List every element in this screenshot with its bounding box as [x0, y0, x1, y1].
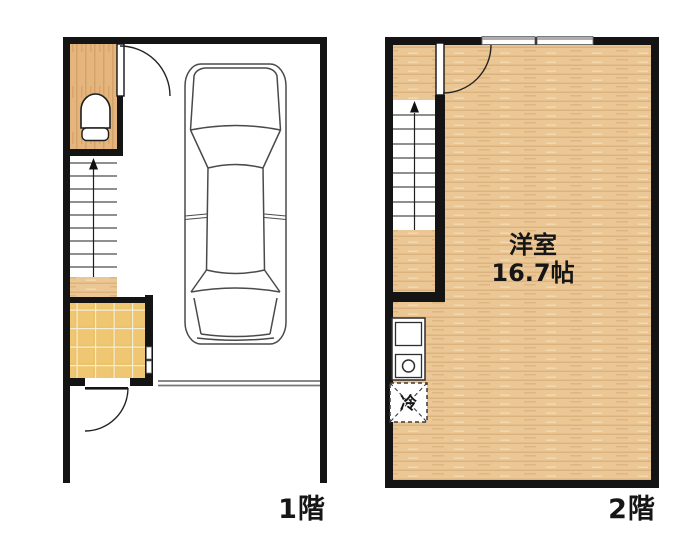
floorplan-first-floor	[58, 32, 332, 484]
garage-shutter-line	[158, 381, 320, 386]
door-swing-arc	[120, 46, 170, 96]
toilet-icon	[81, 94, 110, 141]
second-floor-label: 2階	[590, 487, 674, 526]
entrance-step-edge	[63, 297, 145, 303]
floorplan-second-floor: 冷 洋室 16.7帖	[380, 30, 665, 495]
door-leaf	[117, 44, 124, 96]
refrigerator-space: 冷	[390, 383, 427, 422]
door-swing-arc	[85, 388, 128, 431]
room-name-label: 洋室	[509, 231, 557, 259]
first-floor-label: 1階	[260, 487, 344, 526]
interior-door	[117, 44, 170, 96]
fridge-label: 冷	[400, 393, 417, 414]
entrance-side-opening-top	[147, 347, 152, 359]
car-icon	[185, 64, 286, 344]
wall-left	[63, 37, 70, 483]
stove-burner-icon	[403, 360, 415, 372]
wall-entrance-bottom-right	[130, 378, 153, 386]
wall-below-toilet	[63, 149, 123, 156]
kitchen-unit-icon	[392, 318, 425, 380]
window-frame	[483, 37, 535, 40]
wall-right	[651, 37, 659, 488]
wall-entrance-bottom-left	[63, 378, 85, 386]
entrance-door	[85, 387, 128, 431]
staircase-second-floor	[393, 100, 435, 230]
wall-right	[320, 37, 327, 483]
kitchen-sink-icon	[396, 323, 422, 346]
entrance-tile-floor	[70, 303, 145, 378]
door-leaf	[85, 387, 128, 390]
wall-top	[63, 37, 327, 44]
door-leaf	[436, 43, 444, 95]
wall-stair-enclosure-bottom	[385, 292, 445, 302]
wall-toilet-right	[117, 96, 123, 156]
hall-floor	[70, 277, 117, 297]
window-frame	[538, 37, 593, 40]
wall-stair-enclosure	[435, 95, 445, 302]
staircase-first-floor	[70, 156, 117, 277]
room-size-label: 16.7帖	[491, 259, 574, 287]
entrance-side-opening-bottom	[147, 361, 152, 373]
floorplan-canvas: 冷 洋室 16.7帖 1階 2階	[0, 0, 677, 537]
windows	[482, 37, 593, 45]
